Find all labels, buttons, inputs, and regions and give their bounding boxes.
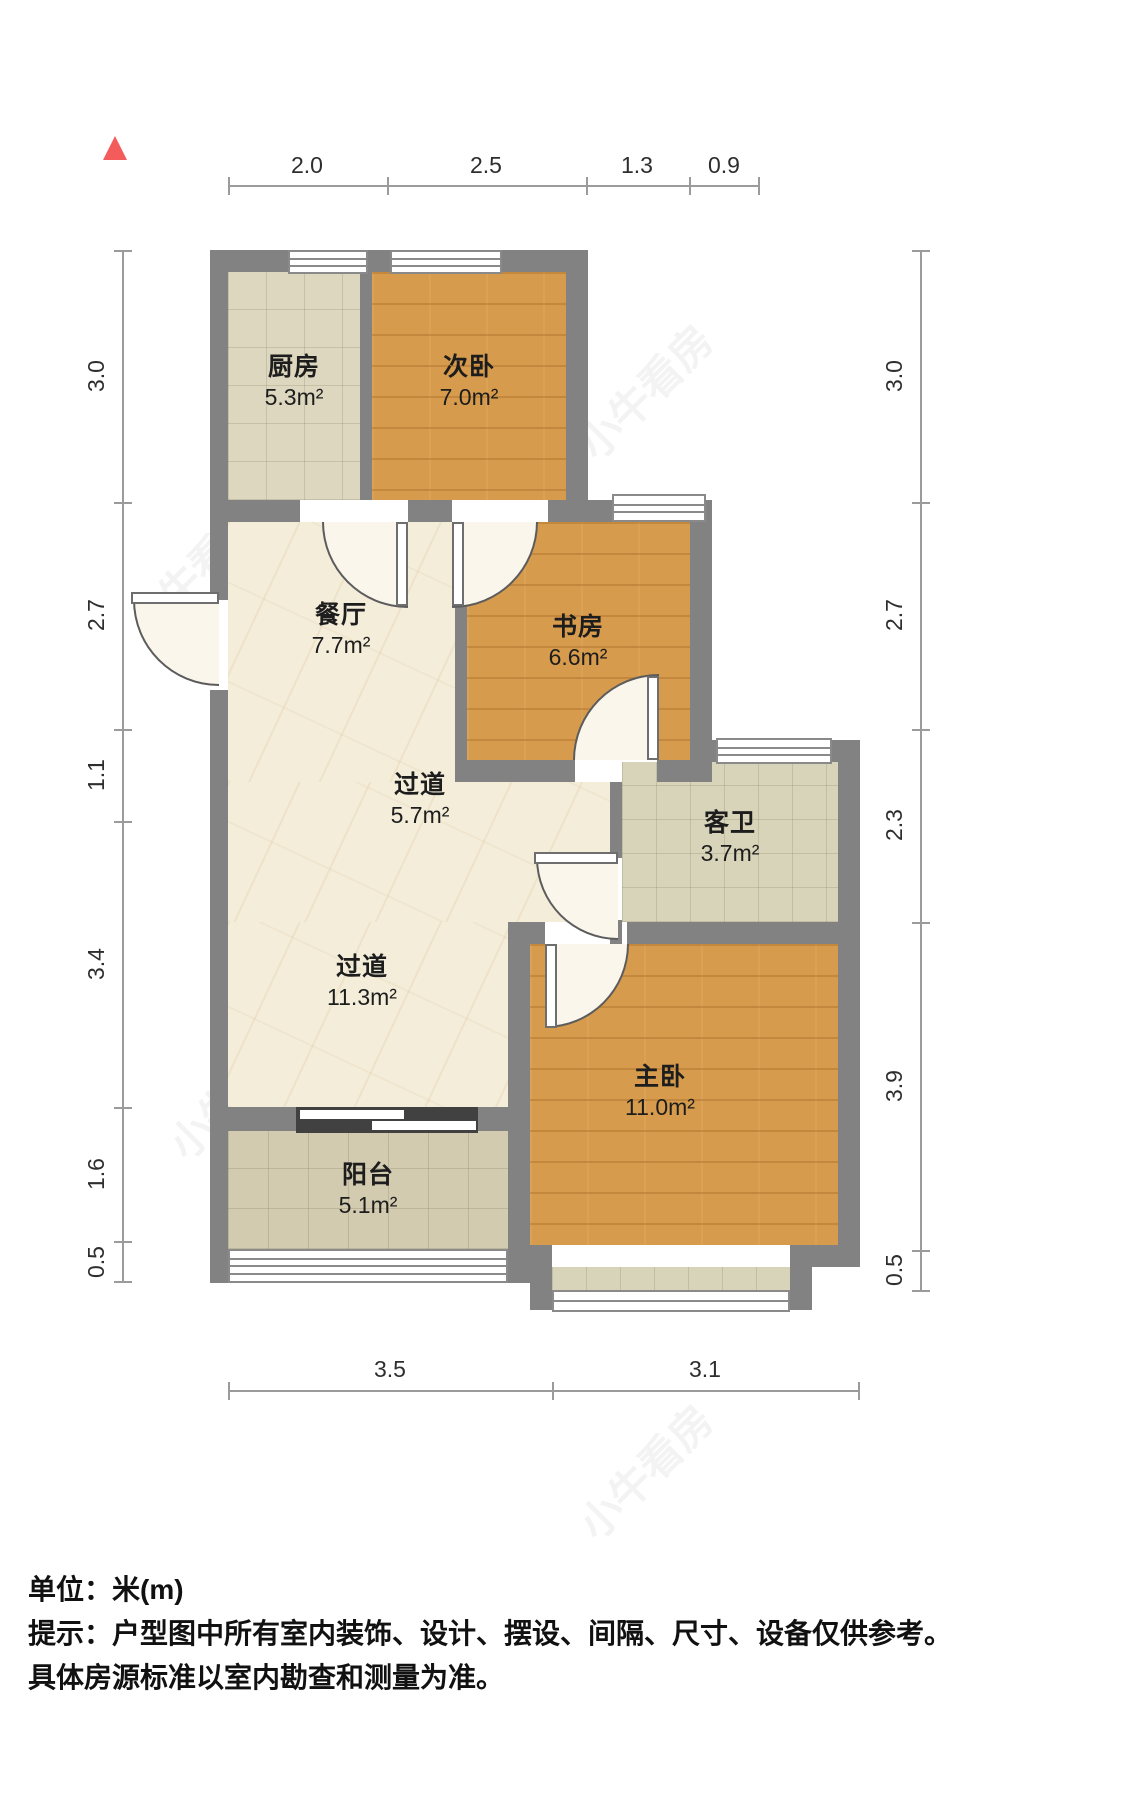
room-label-master-bedroom: 主卧 11.0m²: [600, 1062, 720, 1122]
dim-label-left: 3.4: [83, 928, 109, 1000]
wall: [360, 272, 372, 500]
room-label-kitchen: 厨房 5.3m²: [234, 352, 354, 412]
master-bedroom-door-leaf: [545, 944, 557, 1028]
dim-tick: [552, 1382, 554, 1400]
second-bedroom-door-leaf: [452, 522, 464, 606]
room-area: 11.3m²: [302, 983, 422, 1012]
dim-label-top: 2.5: [450, 152, 522, 178]
wall: [508, 922, 545, 944]
study-window: [612, 494, 706, 522]
wall: [508, 944, 530, 1283]
room-area: 5.3m²: [234, 383, 354, 412]
wall: [210, 250, 228, 600]
dim-line-bottom: [228, 1390, 860, 1392]
room-name: 主卧: [600, 1062, 720, 1093]
room-label-hallway-large: 过道 11.3m²: [302, 952, 422, 1012]
room-name: 过道: [360, 770, 480, 801]
wall: [210, 500, 300, 522]
room-label-second-bedroom: 次卧 7.0m²: [409, 352, 529, 412]
kitchen-door-leaf: [396, 522, 408, 606]
bay-window: [552, 1290, 790, 1312]
dim-label-right: 2.3: [881, 789, 907, 861]
north-arrow-icon: [103, 136, 127, 160]
room-label-balcony: 阳台 5.1m²: [308, 1160, 428, 1220]
study-door-leaf: [647, 676, 659, 760]
room-name: 阳台: [308, 1160, 428, 1191]
dim-label-right: 3.9: [881, 1050, 907, 1122]
dim-tick: [912, 250, 930, 252]
dim-tick: [758, 177, 760, 195]
dim-line-top: [228, 185, 760, 187]
dim-label-bottom: 3.1: [669, 1356, 741, 1382]
dim-tick: [912, 729, 930, 731]
floorplan-page: 小牛看房 小牛看房 小牛看房 小牛看房 小牛看房: [0, 0, 1125, 1796]
dim-label-left: 2.7: [83, 579, 109, 651]
wall: [478, 1107, 508, 1131]
wall: [838, 944, 860, 1267]
dim-tick: [114, 1241, 132, 1243]
room-name: 餐厅: [281, 600, 401, 631]
room-area: 5.7m²: [360, 801, 480, 830]
dim-tick: [114, 1281, 132, 1283]
guest-bathroom-window: [716, 738, 832, 764]
dim-line-right: [920, 250, 922, 1292]
room-area: 11.0m²: [600, 1093, 720, 1122]
dim-tick: [114, 250, 132, 252]
sliding-door-panel: [372, 1121, 476, 1130]
entry-door-swing: [133, 600, 219, 686]
watermark: 小牛看房: [563, 1390, 725, 1552]
wall: [210, 690, 228, 1283]
room-name: 次卧: [409, 352, 529, 383]
dim-label-left: 3.0: [83, 340, 109, 412]
footer-tip-line1: 提示：户型图中所有室内装饰、设计、摆设、间隔、尺寸、设备仅供参考。: [28, 1612, 952, 1652]
room-label-dining: 餐厅 7.7m²: [281, 600, 401, 660]
wall: [610, 782, 622, 858]
dim-label-left: 1.1: [83, 739, 109, 811]
dim-tick: [912, 1250, 930, 1252]
footer-tip-line2: 具体房源标准以室内勘查和测量为准。: [28, 1656, 504, 1696]
wall: [627, 922, 860, 944]
hallway-large-floor: [228, 922, 508, 1107]
room-label-guest-bathroom: 客卫 3.7m²: [670, 808, 790, 868]
wall: [548, 500, 588, 522]
entry-door-leaf: [131, 592, 219, 604]
room-label-hallway-small: 过道 5.7m²: [360, 770, 480, 830]
wall: [790, 1245, 860, 1267]
dim-label-right: 3.0: [881, 340, 907, 412]
room-area: 7.7m²: [281, 631, 401, 660]
dim-tick: [858, 1382, 860, 1400]
room-name: 书房: [518, 612, 638, 643]
wall: [508, 1245, 552, 1267]
room-area: 5.1m²: [308, 1191, 428, 1220]
sliding-door-panel: [300, 1110, 404, 1119]
guest-bathroom-door-leaf: [534, 852, 618, 864]
kitchen-window: [288, 250, 368, 274]
dim-tick: [912, 502, 930, 504]
dim-tick: [586, 177, 588, 195]
second-bedroom-window: [390, 250, 502, 274]
room-area: 3.7m²: [670, 839, 790, 868]
wall: [838, 740, 860, 944]
dim-label-top: 0.9: [688, 152, 760, 178]
dim-label-top: 2.0: [271, 152, 343, 178]
dim-tick: [228, 177, 230, 195]
room-name: 厨房: [234, 352, 354, 383]
room-name: 客卫: [670, 808, 790, 839]
dim-tick: [114, 729, 132, 731]
dim-tick: [114, 502, 132, 504]
wall: [228, 1107, 296, 1131]
dim-label-right: 0.5: [881, 1234, 907, 1306]
footer-unit-note: 单位：米(m): [28, 1568, 184, 1608]
dim-label-right: 2.7: [881, 579, 907, 651]
balcony-window: [228, 1249, 508, 1283]
dim-tick: [689, 177, 691, 195]
room-area: 6.6m²: [518, 643, 638, 672]
room-area: 7.0m²: [409, 383, 529, 412]
room-label-study: 书房 6.6m²: [518, 612, 638, 672]
wall: [790, 1267, 812, 1310]
dim-label-top: 1.3: [601, 152, 673, 178]
dim-label-left: 1.6: [83, 1138, 109, 1210]
wall: [657, 760, 712, 782]
wall: [408, 500, 452, 522]
dim-tick: [114, 1107, 132, 1109]
bay-window-floor: [552, 1267, 790, 1292]
dim-tick: [387, 177, 389, 195]
dim-label-bottom: 3.5: [354, 1356, 426, 1382]
guest-bathroom-door-swing: [536, 858, 618, 940]
dim-tick: [114, 821, 132, 823]
wall: [530, 1267, 552, 1310]
dim-line-left: [122, 250, 124, 1283]
room-name: 过道: [302, 952, 422, 983]
dim-tick: [912, 922, 930, 924]
dim-tick: [228, 1382, 230, 1400]
wall: [210, 1249, 228, 1283]
wall: [566, 250, 588, 500]
dim-label-left: 0.5: [83, 1226, 109, 1298]
dim-tick: [912, 1290, 930, 1292]
